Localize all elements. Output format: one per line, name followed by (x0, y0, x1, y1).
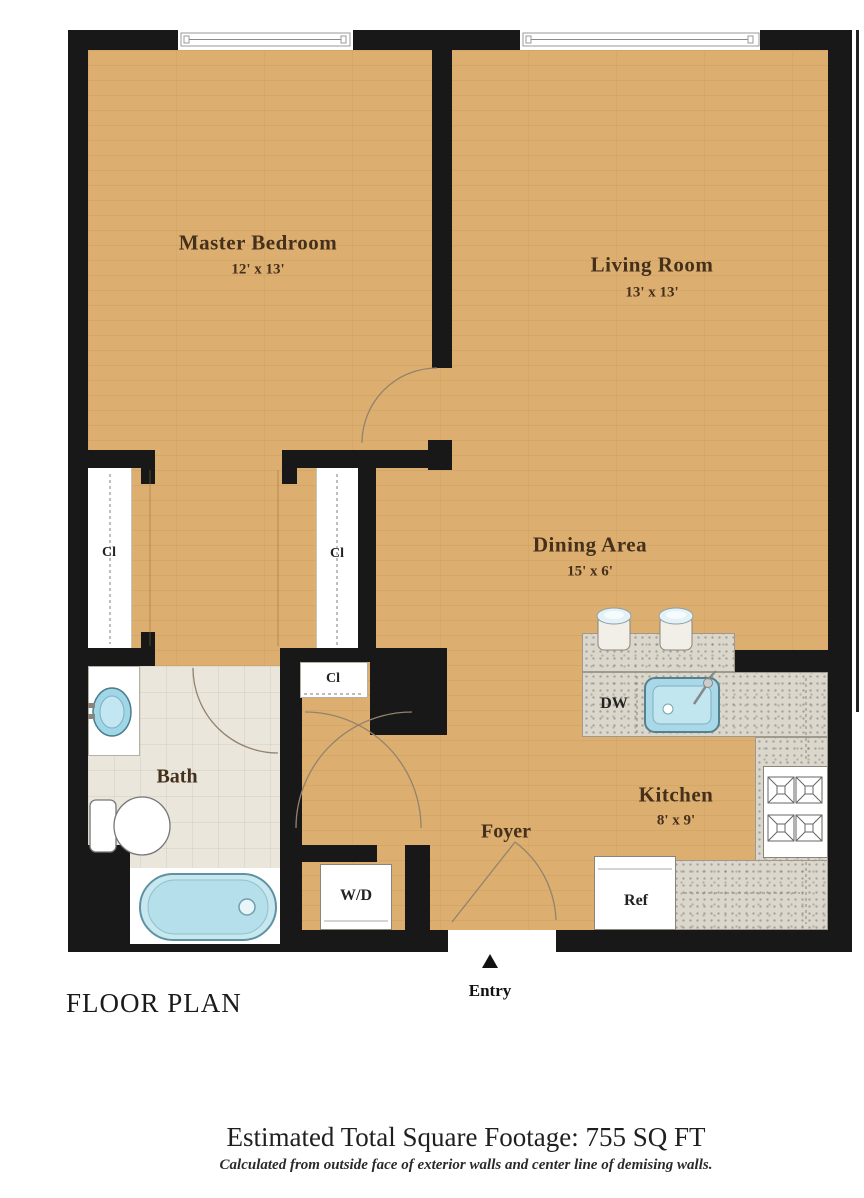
wall-closet-left-bottom (88, 648, 155, 666)
closet-foyer-label: Cl (326, 671, 340, 687)
living-window-icon (523, 33, 759, 46)
wall-closet-left-bottom-stub (141, 632, 155, 648)
kitchen-dims: 8' x 9' (657, 813, 695, 830)
stove-box (763, 766, 828, 858)
tub-alcove (130, 868, 280, 944)
wall-closet-middle-east (358, 450, 376, 660)
dining-area-dims: 15' x 6' (567, 564, 613, 581)
wall-bath-corner-block (68, 845, 130, 940)
footer-total-sqft: Estimated Total Square Footage: 755 SQ F… (226, 1122, 705, 1153)
wall-bedroom-south-a (88, 450, 155, 468)
washer-dryer-label: W/D (340, 887, 372, 905)
wall-bedroom-south-b-stub (282, 468, 297, 484)
kitchen-counter-peninsula (582, 633, 735, 672)
wall-bedroom-living-divider (432, 48, 452, 368)
wall-dining-kitchen-jog (735, 650, 828, 672)
wall-right (828, 30, 852, 952)
wall-wd-top (302, 845, 377, 862)
demising-wall-line (856, 30, 859, 712)
floor-plan-title: FLOOR PLAN (66, 988, 242, 1019)
living-room-label: Living Room (591, 253, 714, 278)
foyer-label: Foyer (481, 821, 531, 844)
wall-bottom-right (556, 930, 852, 952)
dishwasher-label: DW (600, 695, 628, 713)
wall-foyer-north-chunk (370, 660, 447, 735)
refrigerator-label: Ref (624, 892, 648, 910)
wall-bath-east (280, 648, 302, 930)
master-bedroom-dims: 12' x 13' (231, 262, 284, 279)
master-bedroom-label: Master Bedroom (179, 231, 337, 256)
closet-middle-label: Cl (330, 546, 344, 562)
wall-top-middle (353, 30, 520, 50)
entry-arrow-icon (482, 954, 498, 968)
dining-area-label: Dining Area (533, 533, 647, 558)
wall-bedroom-south-a-stub (141, 468, 155, 484)
closet-left-label: Cl (102, 545, 116, 561)
bath-label: Bath (156, 766, 197, 789)
bath-vanity-counter (88, 666, 140, 756)
wall-wd-east (405, 845, 430, 930)
kitchen-label: Kitchen (639, 783, 714, 808)
entry-label: Entry (469, 981, 512, 1001)
bedroom-window-icon (181, 33, 350, 46)
living-room-dims: 13' x 13' (625, 285, 678, 302)
wall-left (68, 30, 88, 952)
floor-plan-page: Master Bedroom 12' x 13' Living Room 13'… (0, 0, 864, 1198)
footer-disclaimer: Calculated from outside face of exterior… (220, 1157, 713, 1174)
